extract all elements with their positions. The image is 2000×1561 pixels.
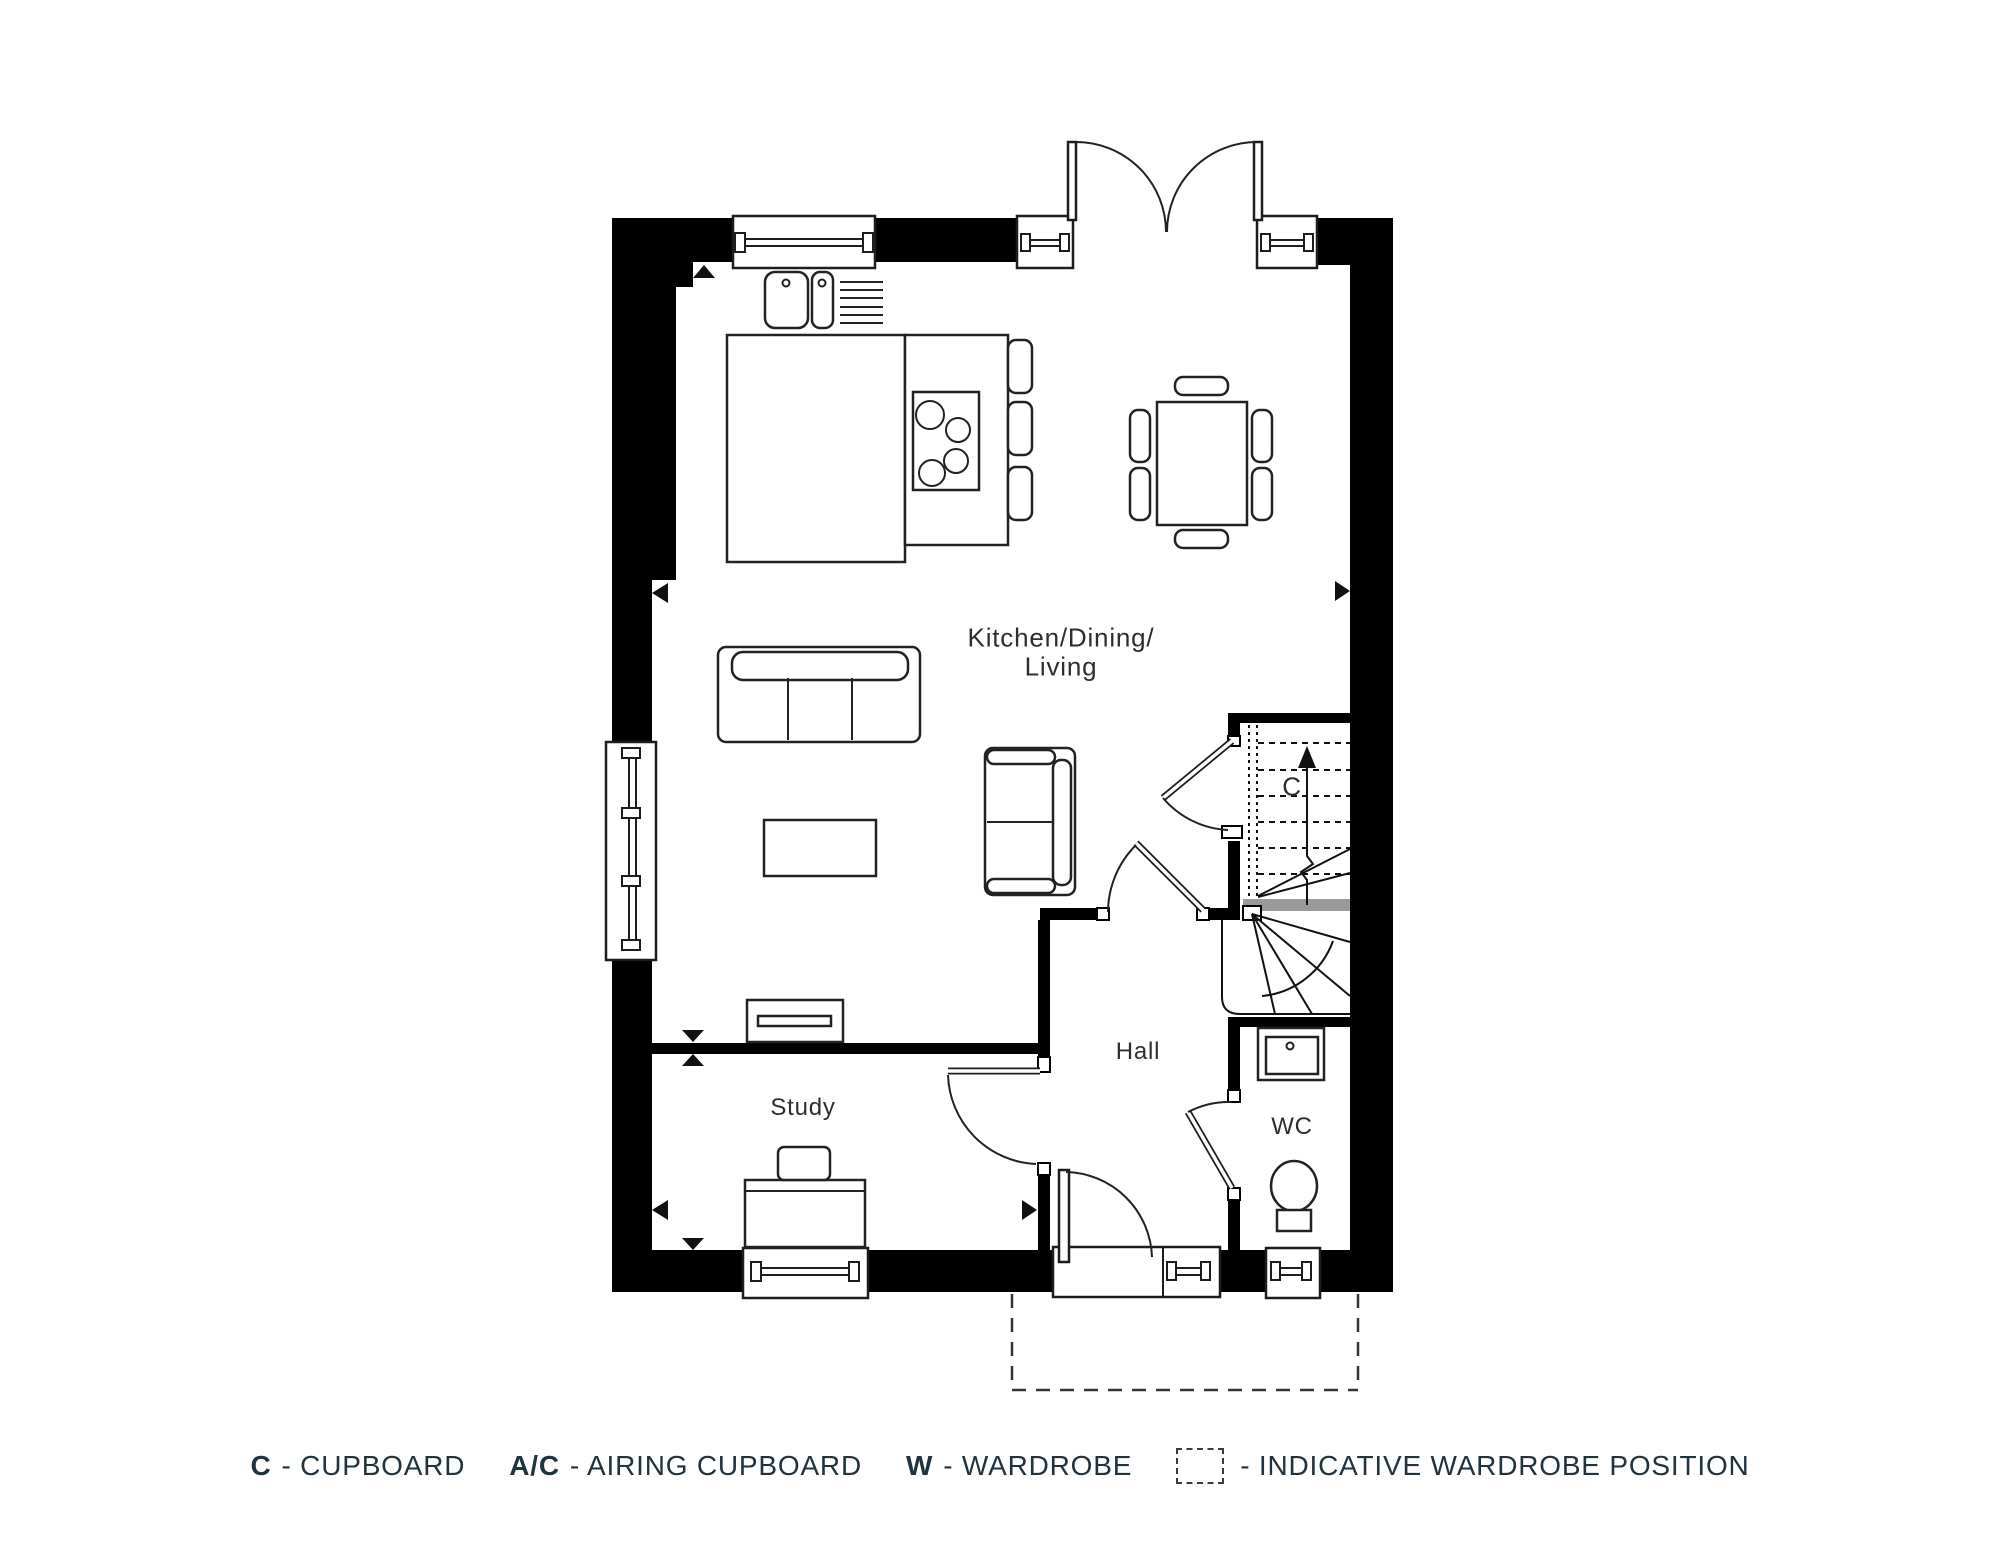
study-door [948,1071,1040,1164]
living-hall-door [1108,843,1203,912]
understairs-cupboard-door [1163,741,1232,830]
hob [913,392,979,490]
study-label: Study [770,1095,835,1121]
wc-label: WC [1271,1114,1313,1140]
legend-symbol-c: C [250,1450,271,1482]
wc-door [1188,1102,1232,1188]
legend-label-cupboard: - CUPBOARD [281,1450,465,1482]
legend: C - CUPBOARD A/C - AIRING CUPBOARD W - W… [0,1448,2000,1484]
hall-label: Hall [1116,1039,1161,1065]
breakfast-bar-stools [1008,340,1032,520]
tv-unit [747,1000,843,1042]
legend-symbol-w: W [906,1450,933,1482]
kitchen-dining-living-label: Kitchen/Dining/ Living [968,623,1155,680]
staircase [1222,725,1350,1014]
porch-outline [1012,1294,1358,1390]
cupboard-label: C [1282,773,1302,802]
legend-label-wardrobe: - WARDROBE [943,1450,1132,1482]
window-right-of-doors [1257,216,1317,268]
wc-window [1266,1248,1320,1298]
kitchen-label-line1: Kitchen/Dining/ [968,623,1155,652]
desk [745,1147,865,1247]
legend-symbol-ac: A/C [509,1450,560,1482]
living-room-tall-window [606,742,656,960]
legend-item-wardrobe: W - WARDROBE [906,1450,1132,1482]
legend-item-airing-cupboard: A/C - AIRING CUPBOARD [509,1450,862,1482]
toilet [1271,1161,1317,1231]
kitchen-label-line2: Living [968,652,1155,681]
wc-basin [1258,1028,1324,1080]
floor-plan-drawing [0,0,2000,1561]
legend-item-cupboard: C - CUPBOARD [250,1450,465,1482]
legend-label-airing-cupboard: - AIRING CUPBOARD [570,1450,862,1482]
sink-drainer [840,282,883,323]
floor-plan-page: Kitchen/Dining/ Living Study Hall WC C C… [0,0,2000,1561]
front-door [1053,1170,1220,1297]
legend-item-indicative-wardrobe: - INDICATIVE WARDROBE POSITION [1176,1448,1749,1484]
kitchen-window [733,216,875,268]
french-doors [1068,142,1262,232]
coffee-table [764,820,876,876]
kitchen-sink [765,272,833,328]
window-left-of-doors [1017,216,1073,268]
dashed-box-icon [1176,1448,1224,1484]
dining-table [1130,377,1272,548]
loveseat [985,748,1075,895]
legend-label-indicative-wardrobe: - INDICATIVE WARDROBE POSITION [1240,1450,1749,1482]
study-window [743,1248,868,1298]
sofa [718,647,920,742]
